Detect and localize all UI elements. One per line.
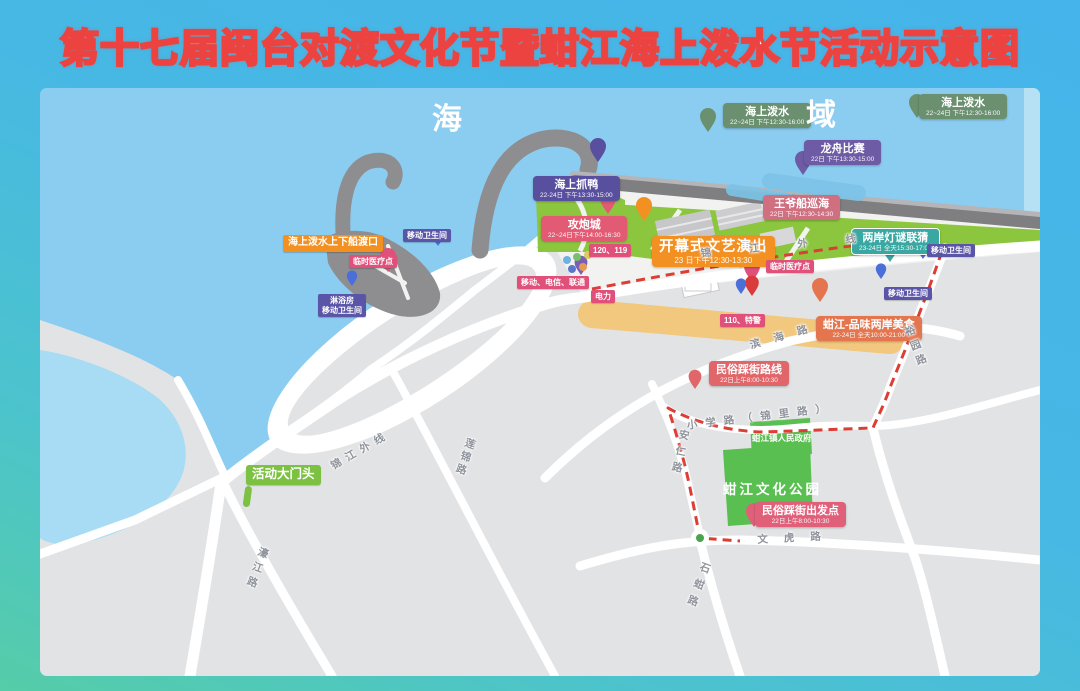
roundabout xyxy=(691,529,709,547)
map-canvas xyxy=(40,88,1040,676)
poster-title: 第十七届闽台对渡文化节暨蚶江海上泼水节活动示意图 xyxy=(0,18,1080,74)
map-geography xyxy=(40,88,1040,676)
festival-map-poster: 第十七届闽台对渡文化节暨蚶江海上泼水节活动示意图 xyxy=(0,0,1080,691)
